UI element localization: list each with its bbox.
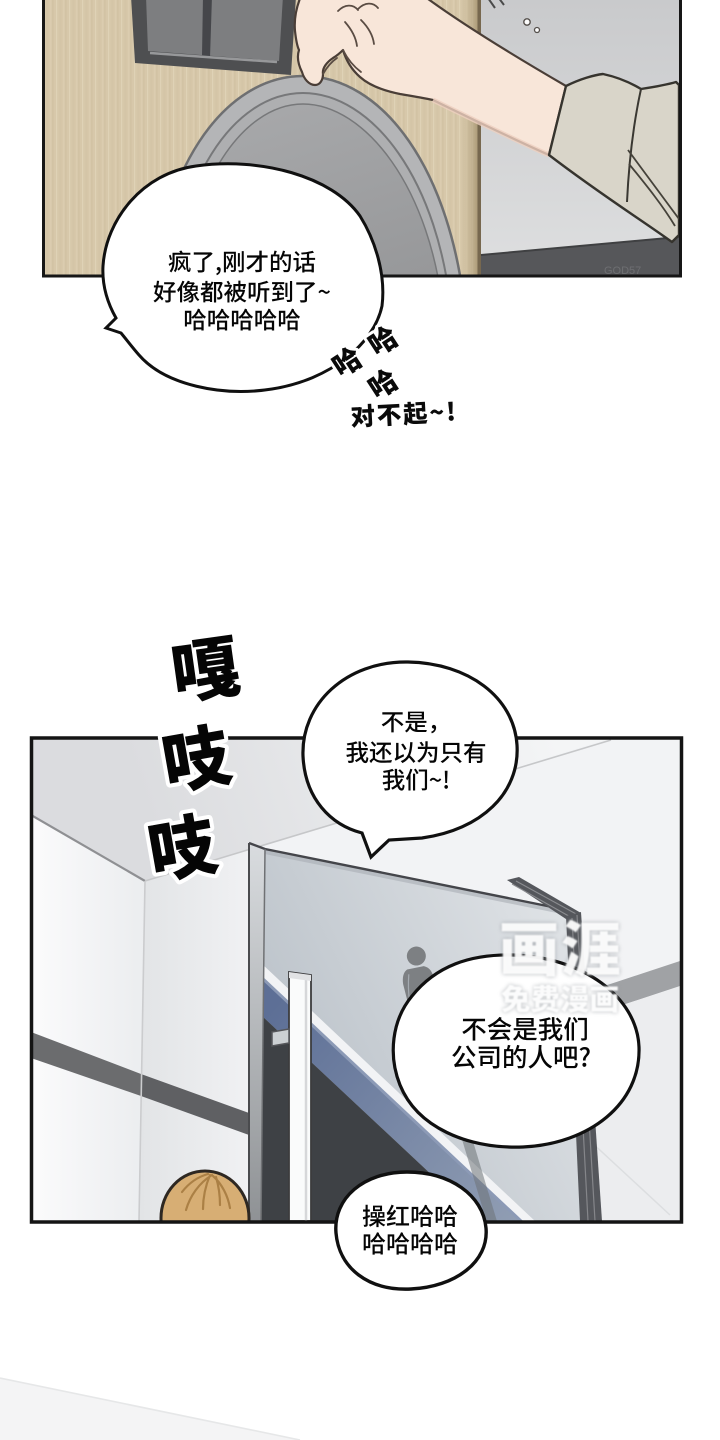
svg-text:公司的人吧?: 公司的人吧? [451, 1038, 591, 1075]
svg-text:不是，: 不是， [381, 704, 452, 738]
svg-text:画涯: 画涯 [499, 902, 623, 989]
svg-text:哈哈哈哈: 哈哈哈哈 [362, 1225, 458, 1260]
svg-text:对不起~!: 对不起~! [350, 393, 459, 434]
svg-text:哈哈哈哈哈: 哈哈哈哈哈 [183, 302, 301, 336]
svg-text:我们~!: 我们~! [382, 762, 450, 796]
svg-text:疯了,刚才的话: 疯了,刚才的话 [168, 244, 316, 278]
svg-text:免费漫画: 免费漫画 [501, 977, 619, 1019]
